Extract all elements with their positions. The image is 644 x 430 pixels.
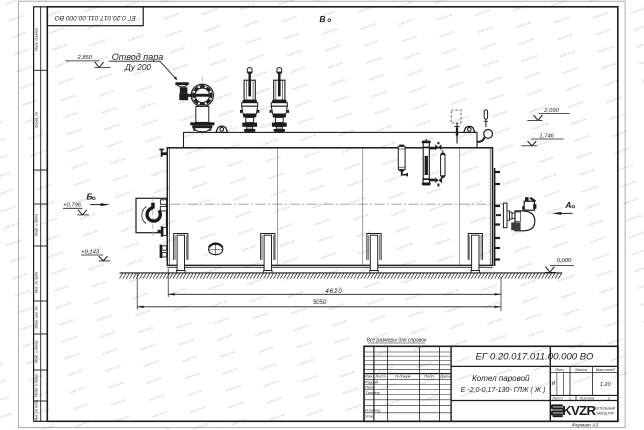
svg-text:Дата: Дата (439, 373, 451, 378)
svg-text:Изм.: Изм. (365, 373, 374, 378)
svg-text:Листов: Листов (579, 395, 595, 400)
svg-text:Масштаб: Масштаб (596, 367, 616, 372)
svg-text:Подп. и дата: Подп. и дата (35, 214, 39, 237)
svg-text:1:20: 1:20 (600, 382, 612, 388)
svg-text:0,000: 0,000 (557, 258, 572, 264)
svg-text:Все размеры для справок: Все размеры для справок (367, 337, 428, 343)
svg-text:Лист: Лист (551, 395, 563, 400)
svg-text:А: А (564, 200, 571, 210)
svg-text:Подп. и дата: Подп. и дата (35, 374, 39, 397)
svg-text:Лист: Лист (374, 373, 386, 378)
svg-text:Масса: Масса (575, 367, 588, 372)
svg-text:Т.контр.: Т.контр. (365, 390, 381, 395)
svg-text:1: 1 (569, 395, 571, 400)
svg-text:2,850: 2,850 (77, 55, 93, 61)
svg-text:Формат А3: Формат А3 (572, 423, 599, 429)
svg-text:КОТЕЛЬНЫЙ: КОТЕЛЬНЫЙ (595, 406, 616, 410)
svg-text:Е -2,0-0,17-130- ГЛЖ ( Ж ): Е -2,0-0,17-130- ГЛЖ ( Ж ) (461, 387, 546, 394)
svg-text:4620: 4620 (325, 288, 342, 295)
svg-text:Ду 200: Ду 200 (124, 63, 151, 72)
svg-text:Инв. № подл.: Инв. № подл. (35, 399, 39, 421)
svg-text:Инв. № дубл.: Инв. № дубл. (35, 271, 39, 293)
svg-text:N докум.: N докум. (395, 373, 411, 378)
svg-text:5050: 5050 (313, 300, 327, 306)
svg-text:Подп. и дата: Подп. и дата (35, 341, 39, 364)
svg-text:Взам. инв. №: Взам. инв. № (35, 306, 39, 328)
svg-text:Котел паровой: Котел паровой (472, 374, 530, 383)
svg-text:+0,143: +0,143 (81, 249, 100, 255)
svg-text:Отвод пара: Отвод пара (112, 52, 163, 62)
svg-text:ЕГ 0.20.017.011.00.000 ВО: ЕГ 0.20.017.011.00.000 ВО (55, 14, 136, 21)
svg-text:Утв.: Утв. (365, 414, 374, 419)
svg-text:Перв. примен.: Перв. примен. (35, 27, 39, 51)
svg-text:KVZR: KVZR (562, 403, 596, 418)
svg-text:Подп.: Подп. (424, 373, 435, 378)
svg-text:ЕГ 0.20.017.011.00.000 ВО: ЕГ 0.20.017.011.00.000 ВО (476, 352, 594, 363)
svg-text:Справ. №: Справ. № (35, 112, 39, 128)
svg-text:В: В (319, 14, 325, 24)
svg-text:Н.контр.: Н.контр. (365, 408, 381, 413)
svg-text:+0,796: +0,796 (63, 202, 82, 208)
svg-text:ЗАВОД РЗР: ЗАВОД РЗР (596, 411, 615, 415)
svg-text:Б: Б (86, 192, 92, 202)
svg-text:И: И (552, 381, 556, 387)
svg-text:Лит.: Лит. (554, 367, 564, 372)
